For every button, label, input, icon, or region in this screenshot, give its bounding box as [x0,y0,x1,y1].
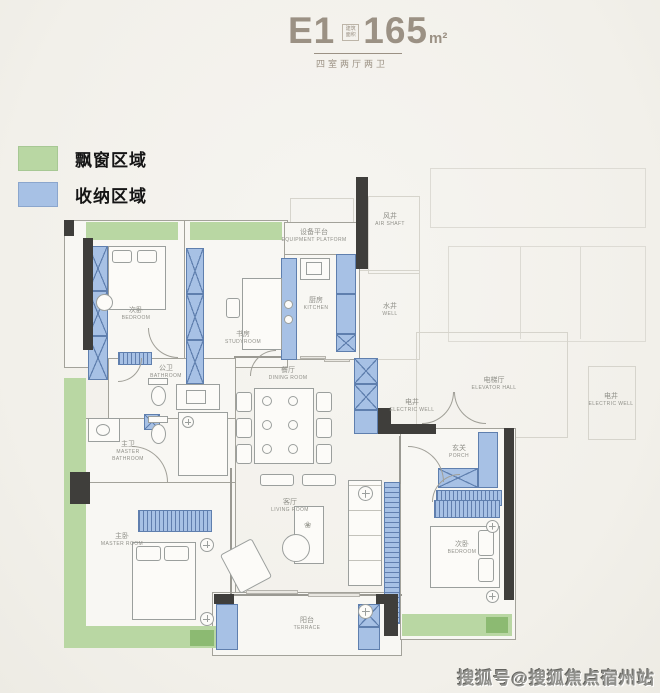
storage-wardrobe [186,294,204,340]
sliding-door [300,356,326,359]
basin-icon [186,390,206,404]
room-label-elevator-hall: 电梯厅 ELEVATOR HALL [472,376,517,392]
neighbor-unit-room [448,246,646,342]
room-label-electric-well-right: 电井 ELECTRIC WELL [585,392,637,408]
room-label-electric-well-inner: 电井 ELECTRIC WELL [386,398,438,414]
room-label-master-room: 主卧 MASTER ROOM [101,532,143,548]
room-label-living-room: 客厅 LIVING ROOM [271,498,309,514]
toilet-tank-icon [148,416,168,423]
floor-plan-page: E1 建筑面积 165 m² 四室两厅两卫 飘窗区域 收纳区域 [0,0,660,693]
chair-icon [316,392,332,412]
storage-kitchen-counter [336,254,356,294]
stove-burner-icon [284,300,293,309]
bay-window-strip [190,222,282,240]
plate-icon [262,396,272,406]
wall-segment [384,600,398,636]
basin-icon [96,424,110,436]
wall-segment [378,424,436,434]
storage-terrace-cabinet [358,627,380,650]
room-label-porch: 玄关 PORCH [449,444,469,460]
bay-window-strip [86,222,178,240]
chair-icon [316,444,332,464]
storage-cabinet [354,358,378,384]
coffee-table-icon [282,534,310,562]
pillow-icon [164,546,189,561]
wall-segment [504,428,514,600]
nightstand-icon [200,612,214,626]
equipment-platform-upper-outline [290,198,354,224]
neighbor-unit-line [520,247,521,339]
storage-wardrobe [186,340,204,384]
plate-icon [288,420,298,430]
nightstand-icon [200,538,214,552]
wall-segment [399,436,401,484]
pillow-icon [137,250,157,263]
room-label-bathroom: 公卫 BATHROOM [150,364,182,380]
plate-icon [288,396,298,406]
room-label-bedroom-bottom-right: 次卧 BEDROOM [448,540,477,556]
room-label-kitchen: 厨房 KITCHEN [304,296,329,312]
wall-segment [64,220,74,236]
room-label-terrace: 阳台 TERRACE [294,616,321,632]
room-label-dining-room: 餐厅 DINING ROOM [269,366,308,382]
bay-window-accent [190,630,214,646]
chair-icon [236,444,252,464]
pillow-icon [112,250,132,263]
storage-cabinet [336,334,356,352]
pillow-icon [478,558,494,582]
side-table-icon [358,486,373,501]
room-label-study: 书房 STUDYROOM [225,330,261,346]
storage-cabinet [354,410,378,434]
storage-kitchen-counter [281,258,297,360]
watermark: 搜狐号@搜狐焦点宿州站 [457,664,655,689]
storage-master-wardrobe [138,510,212,532]
storage-porch-cabinet [478,432,498,488]
air-shaft-outline [368,196,420,274]
chair-icon [316,418,332,438]
room-label-air-shaft: 风井 AIR SHAFT [375,212,405,228]
storage-bedroom-wardrobe [434,500,500,518]
room-label-water-well: 水井 WELL [382,302,397,318]
side-table-icon [358,604,373,619]
room-label-equipment-platform: 设备平台 EQUIPMENT PLATFORM [281,228,346,244]
shower-head-icon [182,416,194,428]
room-label-bedroom-top-left: 次卧 BEDROOM [122,306,151,322]
wall-segment [356,177,368,269]
room-label-master-bathroom: 主卫 MASTER BATHROOM [102,440,154,462]
bay-window-accent [486,617,508,633]
tv-console-icon [302,474,336,486]
neighbor-unit-line [580,247,581,339]
storage-wardrobe [186,248,204,294]
neighbor-unit-outline [430,168,646,228]
nightstand-icon [486,520,499,533]
wall-segment [70,472,90,504]
storage-terrace-cabinet [216,604,238,650]
sink-basin-icon [306,262,322,275]
chair-icon [236,392,252,412]
bay-window-strip [64,378,86,648]
chair-icon [226,298,240,318]
storage-kitchen-counter [336,294,356,334]
wall-segment [83,238,93,350]
chair-icon [96,294,113,311]
pillow-icon [478,530,494,556]
plate-icon [262,444,272,454]
floor-plan: ❀ 次卧 BEDROOM [0,0,660,693]
tv-console-icon [260,474,294,486]
stove-burner-icon [284,315,293,324]
nightstand-icon [486,590,499,603]
chair-icon [236,418,252,438]
wall-segment [214,594,234,604]
sliding-door [246,590,298,594]
plant-icon: ❀ [304,520,312,531]
storage-cabinet [354,384,378,410]
plate-icon [262,420,272,430]
toilet-icon [151,386,166,406]
sliding-door [308,593,360,597]
plate-icon [288,444,298,454]
sliding-door [324,359,350,362]
pillow-icon [136,546,161,561]
